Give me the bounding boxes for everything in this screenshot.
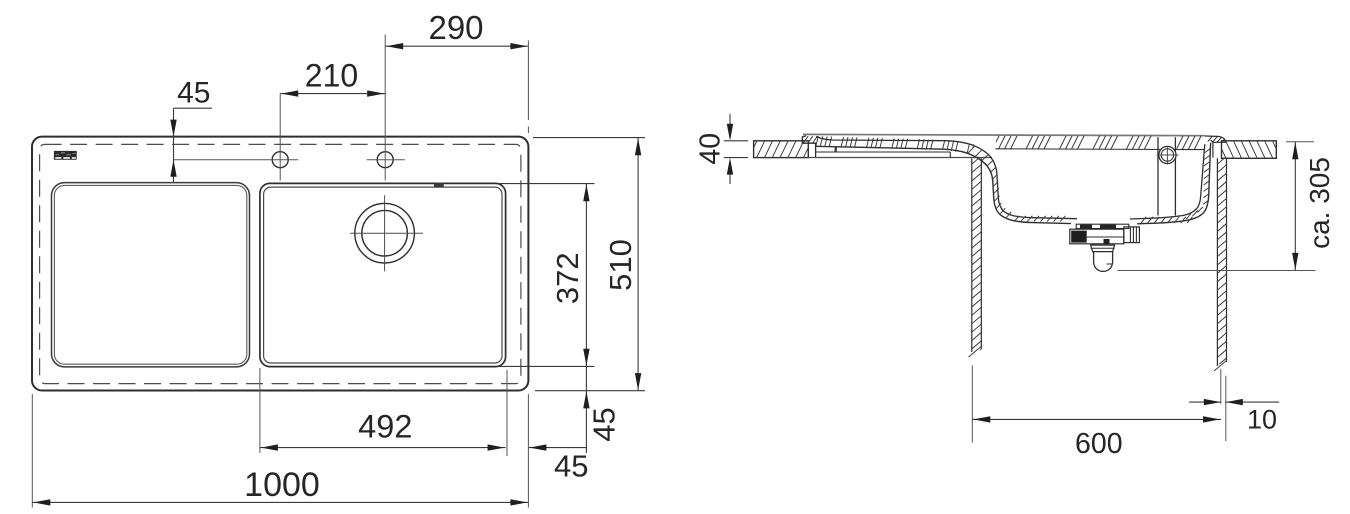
svg-text:40: 40 [694, 133, 726, 165]
svg-text:45: 45 [177, 76, 210, 109]
svg-text:210: 210 [305, 58, 358, 94]
svg-text:1000: 1000 [244, 466, 320, 504]
svg-text:45: 45 [587, 407, 622, 441]
svg-text:10: 10 [1247, 404, 1277, 434]
svg-text:290: 290 [428, 9, 483, 46]
svg-text:372: 372 [550, 252, 585, 304]
svg-text:45: 45 [554, 449, 588, 484]
svg-text:492: 492 [358, 409, 412, 445]
svg-text:600: 600 [1075, 428, 1123, 460]
svg-text:ca. 305: ca. 305 [1304, 157, 1335, 249]
svg-text:510: 510 [603, 239, 638, 291]
